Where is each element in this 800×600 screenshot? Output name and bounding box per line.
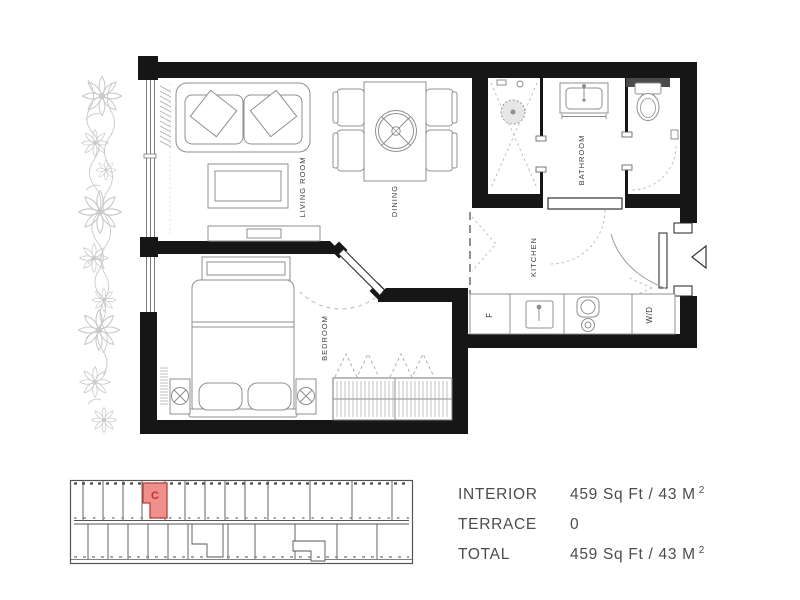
shower-door-jamb: [536, 167, 546, 172]
plants-foliage: [79, 76, 122, 432]
fridge-label: F: [485, 312, 494, 317]
bedroom-sliding-door-leaf: [339, 249, 385, 295]
shower: [497, 80, 525, 124]
bedroom-door-swing-dashed: [300, 292, 382, 309]
key-plan-core: [293, 541, 325, 561]
bedroom-label: BEDROOM: [320, 315, 329, 361]
curtain-hatch: [160, 86, 171, 147]
washer-dryer-label: W/D: [645, 306, 654, 323]
floorplan-page: { "floor_plan": { "rooms": { "living_roo…: [0, 0, 800, 600]
sofa: [176, 83, 310, 152]
entry-arrow-icon: [692, 246, 706, 268]
kitchen-sink: [526, 301, 553, 328]
key-plan-outline: [71, 481, 413, 564]
stat-label: INTERIOR: [458, 482, 570, 508]
dining-table: [364, 82, 426, 181]
toilet-door-jamb: [622, 165, 632, 170]
window-wall: [144, 80, 156, 312]
stat-value: 0: [570, 516, 582, 533]
stat-row-interior: INTERIOR459 Sq Ft / 43 M2: [458, 478, 705, 508]
bathroom-label: BATHROOM: [577, 135, 586, 186]
toilet-door-jamb: [622, 132, 632, 137]
entry-door-jamb-bottom: [674, 286, 692, 296]
stat-row-terrace: TERRACE0: [458, 508, 705, 538]
living-room-label: LIVING ROOM: [298, 156, 307, 217]
floor-plan: LIVING ROOM DINING BEDROOM KITCHEN BATHR…: [0, 0, 800, 472]
stat-label: TOTAL: [458, 542, 570, 568]
dresser: [202, 257, 290, 280]
radiator-hatch: [160, 368, 168, 404]
area-stats: INTERIOR459 Sq Ft / 43 M2 TERRACE0 TOTAL…: [458, 478, 705, 568]
shower-door-jamb: [536, 136, 546, 141]
stat-label: TERRACE: [458, 512, 570, 538]
unit-c-letter: C: [151, 490, 159, 502]
closet-bifold-indicator: [335, 354, 434, 377]
stat-row-total: TOTAL459 Sq Ft / 43 M2: [458, 538, 705, 568]
coffee-table: [208, 164, 288, 208]
sink-vanity: [560, 83, 608, 119]
closet: [333, 378, 452, 420]
bathroom-door-threshold: [548, 198, 622, 209]
lamp-icon: [172, 388, 189, 405]
kitchen-label: KITCHEN: [529, 237, 538, 277]
media-console: [208, 226, 320, 241]
toilet: [635, 83, 678, 139]
key-plan-core: [192, 524, 223, 557]
dining-label: DINING: [390, 185, 399, 217]
bed: [189, 280, 297, 417]
key-plan-top-units: [83, 481, 392, 520]
entry-door-leaf: [659, 233, 667, 288]
lamp-icon: [298, 388, 315, 405]
key-plan-bottom-units: [88, 524, 377, 559]
entry-door-jamb-top: [674, 223, 692, 233]
key-plan: C: [68, 477, 420, 572]
stat-value: 459 Sq Ft / 43 M2: [570, 486, 705, 503]
stat-value: 459 Sq Ft / 43 M2: [570, 546, 705, 563]
